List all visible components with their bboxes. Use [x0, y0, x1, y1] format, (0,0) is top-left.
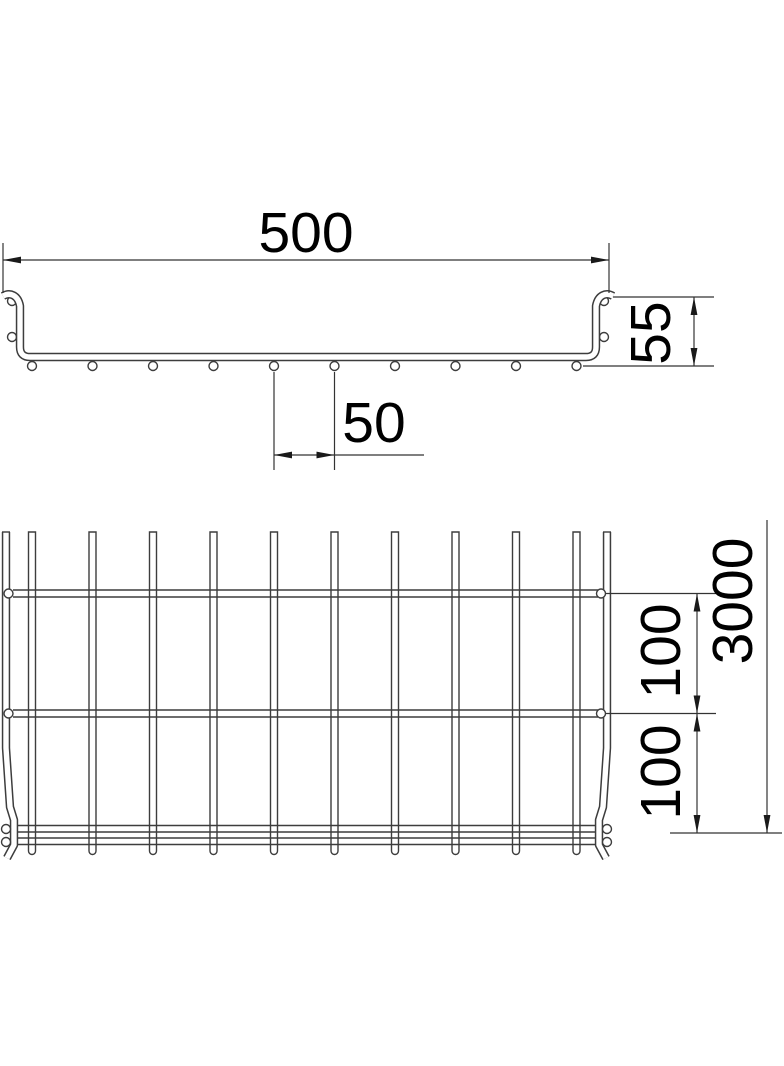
longitudinal-wire [331, 532, 338, 855]
right-mid-wire-circle [600, 333, 609, 342]
rung-end-circle [4, 709, 13, 718]
longitudinal-wire [392, 532, 399, 855]
dim-width-label: 500 [258, 201, 353, 265]
bottom-wire-circle [28, 362, 37, 371]
dim-height-label: 55 [619, 301, 683, 364]
tray-rung-profile [3, 294, 613, 357]
dim-wire-spacing-50: 50 [274, 372, 424, 470]
bottom-wire-circle [149, 362, 158, 371]
arrow-up-icon [694, 594, 701, 612]
bottom-wire-circle [88, 362, 97, 371]
rung-end-circle [597, 589, 606, 598]
dim-wire-spacing-label: 50 [342, 391, 405, 455]
longitudinal-wire [210, 532, 217, 855]
arrow-left-icon [3, 257, 21, 264]
bottom-wire-circle [330, 362, 339, 371]
arrow-down-icon [694, 815, 701, 833]
dim-rung-spacing-bottom-label: 100 [629, 724, 693, 819]
longitudinal-wire [573, 532, 580, 855]
bottom-wire-circle [572, 362, 581, 371]
arrow-left-icon [274, 452, 292, 459]
dim-height-55: 55 [583, 297, 714, 366]
arrow-up-icon [694, 714, 701, 732]
right-side-wire [599, 532, 611, 858]
bottom-wire-circle [451, 362, 460, 371]
side-wall-wire-circles [8, 297, 609, 342]
rung-top [13, 590, 598, 597]
drawing-svg: 500 55 50 [0, 0, 784, 1066]
longitudinal-wire [89, 532, 96, 855]
cross-section-view: 500 55 50 [3, 201, 714, 470]
hook-circle [2, 825, 11, 834]
arrow-down-icon [694, 696, 701, 714]
longitudinal-wire [452, 532, 459, 855]
longitudinal-wires [29, 532, 581, 855]
end-rails [14, 826, 597, 845]
bottom-wire-circle [391, 362, 400, 371]
rung-end-circle [4, 589, 13, 598]
bottom-wire-circles [28, 362, 582, 371]
longitudinal-wire [513, 532, 520, 855]
hook-circle [603, 825, 612, 834]
dim-length-label: 3000 [701, 538, 765, 665]
dim-rung-spacing-bottom-100: 100 [629, 714, 782, 834]
bottom-wire-circle [270, 362, 279, 371]
left-mid-wire-circle [8, 333, 17, 342]
bottom-wire-circle [209, 362, 218, 371]
arrow-up-icon [691, 297, 698, 315]
rung-middle [13, 710, 598, 717]
arrow-down-icon [764, 815, 771, 833]
arrow-right-icon [317, 452, 335, 459]
arrow-right-icon [591, 257, 609, 264]
technical-drawing-canvas: 500 55 50 [0, 0, 784, 1066]
hook-circle [2, 838, 11, 847]
left-side-wire [2, 532, 14, 858]
dim-width-500: 500 [3, 201, 609, 293]
dim-rung-spacing-top-label: 100 [629, 603, 693, 698]
plan-view: 100 100 3000 [2, 520, 783, 858]
arrow-down-icon [691, 348, 698, 366]
dim-length-3000: 3000 [701, 520, 770, 833]
rung-end-circle [597, 709, 606, 718]
longitudinal-wire [29, 532, 36, 855]
hook-circle [603, 838, 612, 847]
longitudinal-wire [150, 532, 157, 855]
bottom-wire-circle [512, 362, 521, 371]
longitudinal-wire [271, 532, 278, 855]
dim-rung-spacing-top-100: 100 [606, 594, 716, 714]
